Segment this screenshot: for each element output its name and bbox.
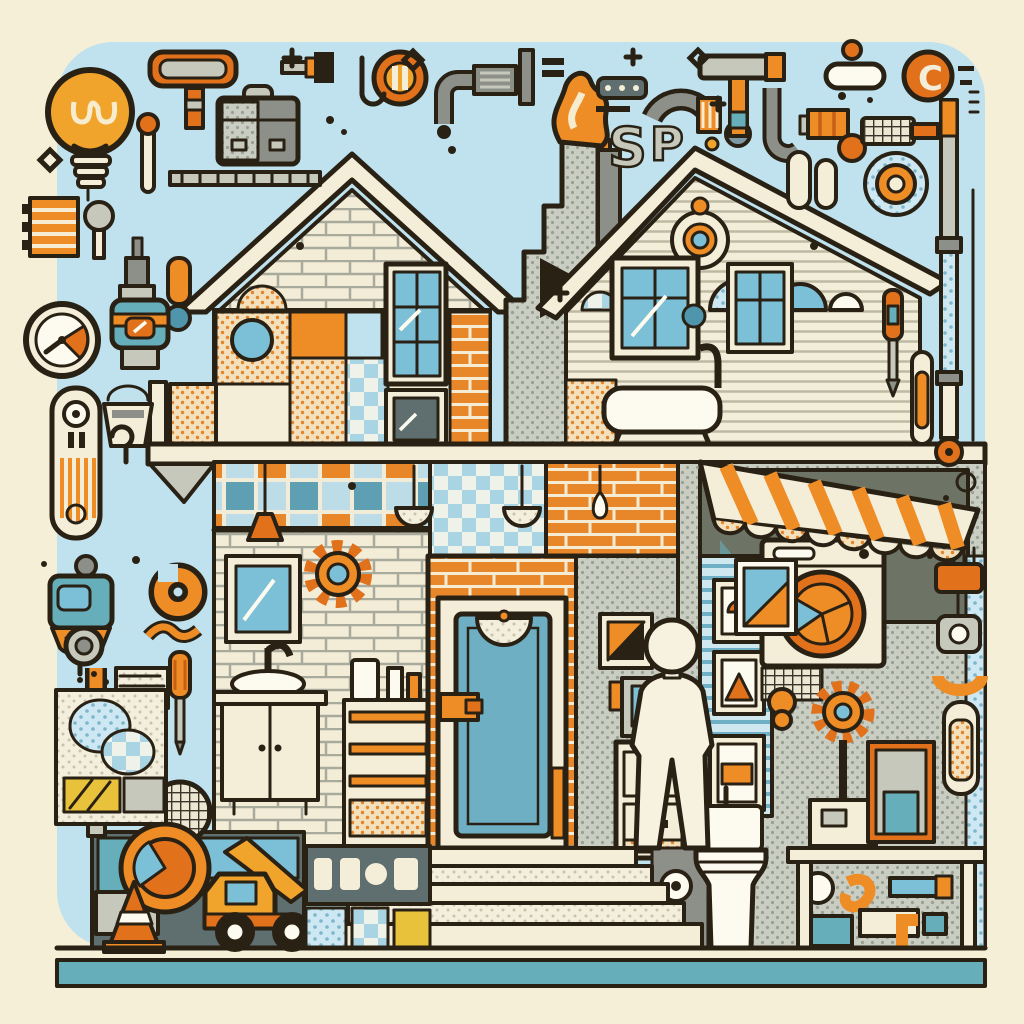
footer-stripe — [57, 960, 985, 986]
framed-picture-triangle — [714, 652, 764, 714]
utility-cabinet — [868, 742, 934, 842]
pressure-gauge-icon — [26, 304, 98, 376]
scene-canvas: S P C — [0, 0, 1024, 1024]
vial-icon — [168, 258, 190, 304]
pipe-fitting-icon — [800, 110, 848, 138]
toolbox-icon — [218, 86, 298, 164]
match-icon — [138, 114, 158, 192]
tall-window — [386, 264, 446, 384]
i-bar-icon — [520, 50, 533, 104]
framed-picture-landscape — [710, 736, 764, 810]
pipe-letter-s: S — [608, 116, 647, 179]
frame-right-of-person — [736, 560, 796, 634]
ledger-stack-icon — [22, 198, 78, 256]
knob-letter-c: C — [918, 59, 943, 99]
right-window-2 — [728, 264, 792, 352]
lower-window — [386, 390, 446, 446]
fabric-panel — [56, 668, 168, 824]
price-sign — [306, 846, 430, 948]
radiator-post-1 — [788, 152, 810, 208]
shelf-unit — [344, 660, 432, 846]
burner-knob-icon — [865, 153, 927, 215]
wall-mirror — [226, 556, 300, 642]
equals-mark — [542, 58, 564, 65]
door-handle-plate-icon — [52, 388, 100, 538]
mock-label — [596, 106, 630, 112]
pipe-letter-p: P — [650, 117, 684, 171]
radiator-post-2 — [816, 160, 836, 208]
illustration-page: S P C — [0, 0, 1024, 1024]
front-door — [438, 598, 566, 848]
porthole-window — [232, 320, 272, 360]
